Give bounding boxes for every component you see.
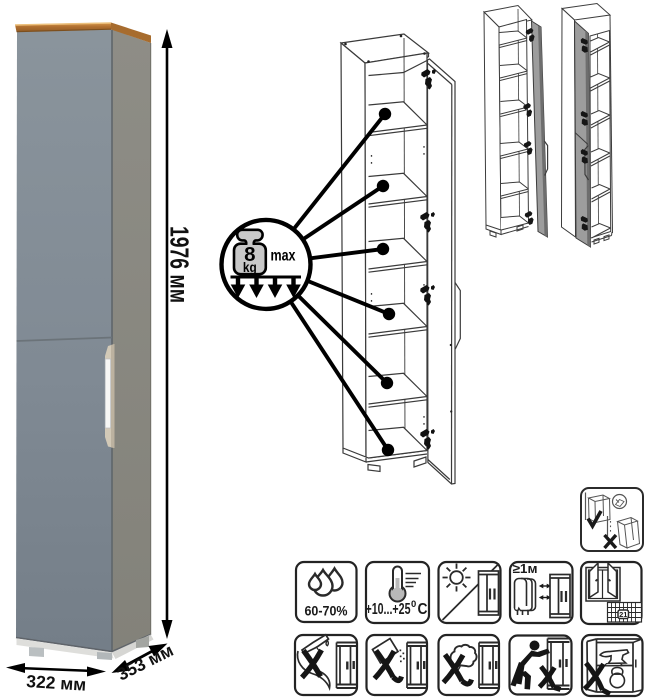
svg-text:21: 21 [619, 610, 627, 619]
svg-text:≥1м: ≥1м [513, 561, 538, 576]
svg-text:C: C [418, 601, 428, 618]
svg-text:1976 мм: 1976 мм [165, 226, 195, 303]
svg-text:max: max [271, 248, 296, 265]
svg-text:kg: kg [243, 260, 257, 275]
svg-text:0: 0 [411, 599, 416, 610]
svg-text:60-70%: 60-70% [305, 603, 348, 619]
svg-text:322 мм: 322 мм [26, 671, 87, 695]
svg-text:+10...+25: +10...+25 [366, 601, 411, 618]
